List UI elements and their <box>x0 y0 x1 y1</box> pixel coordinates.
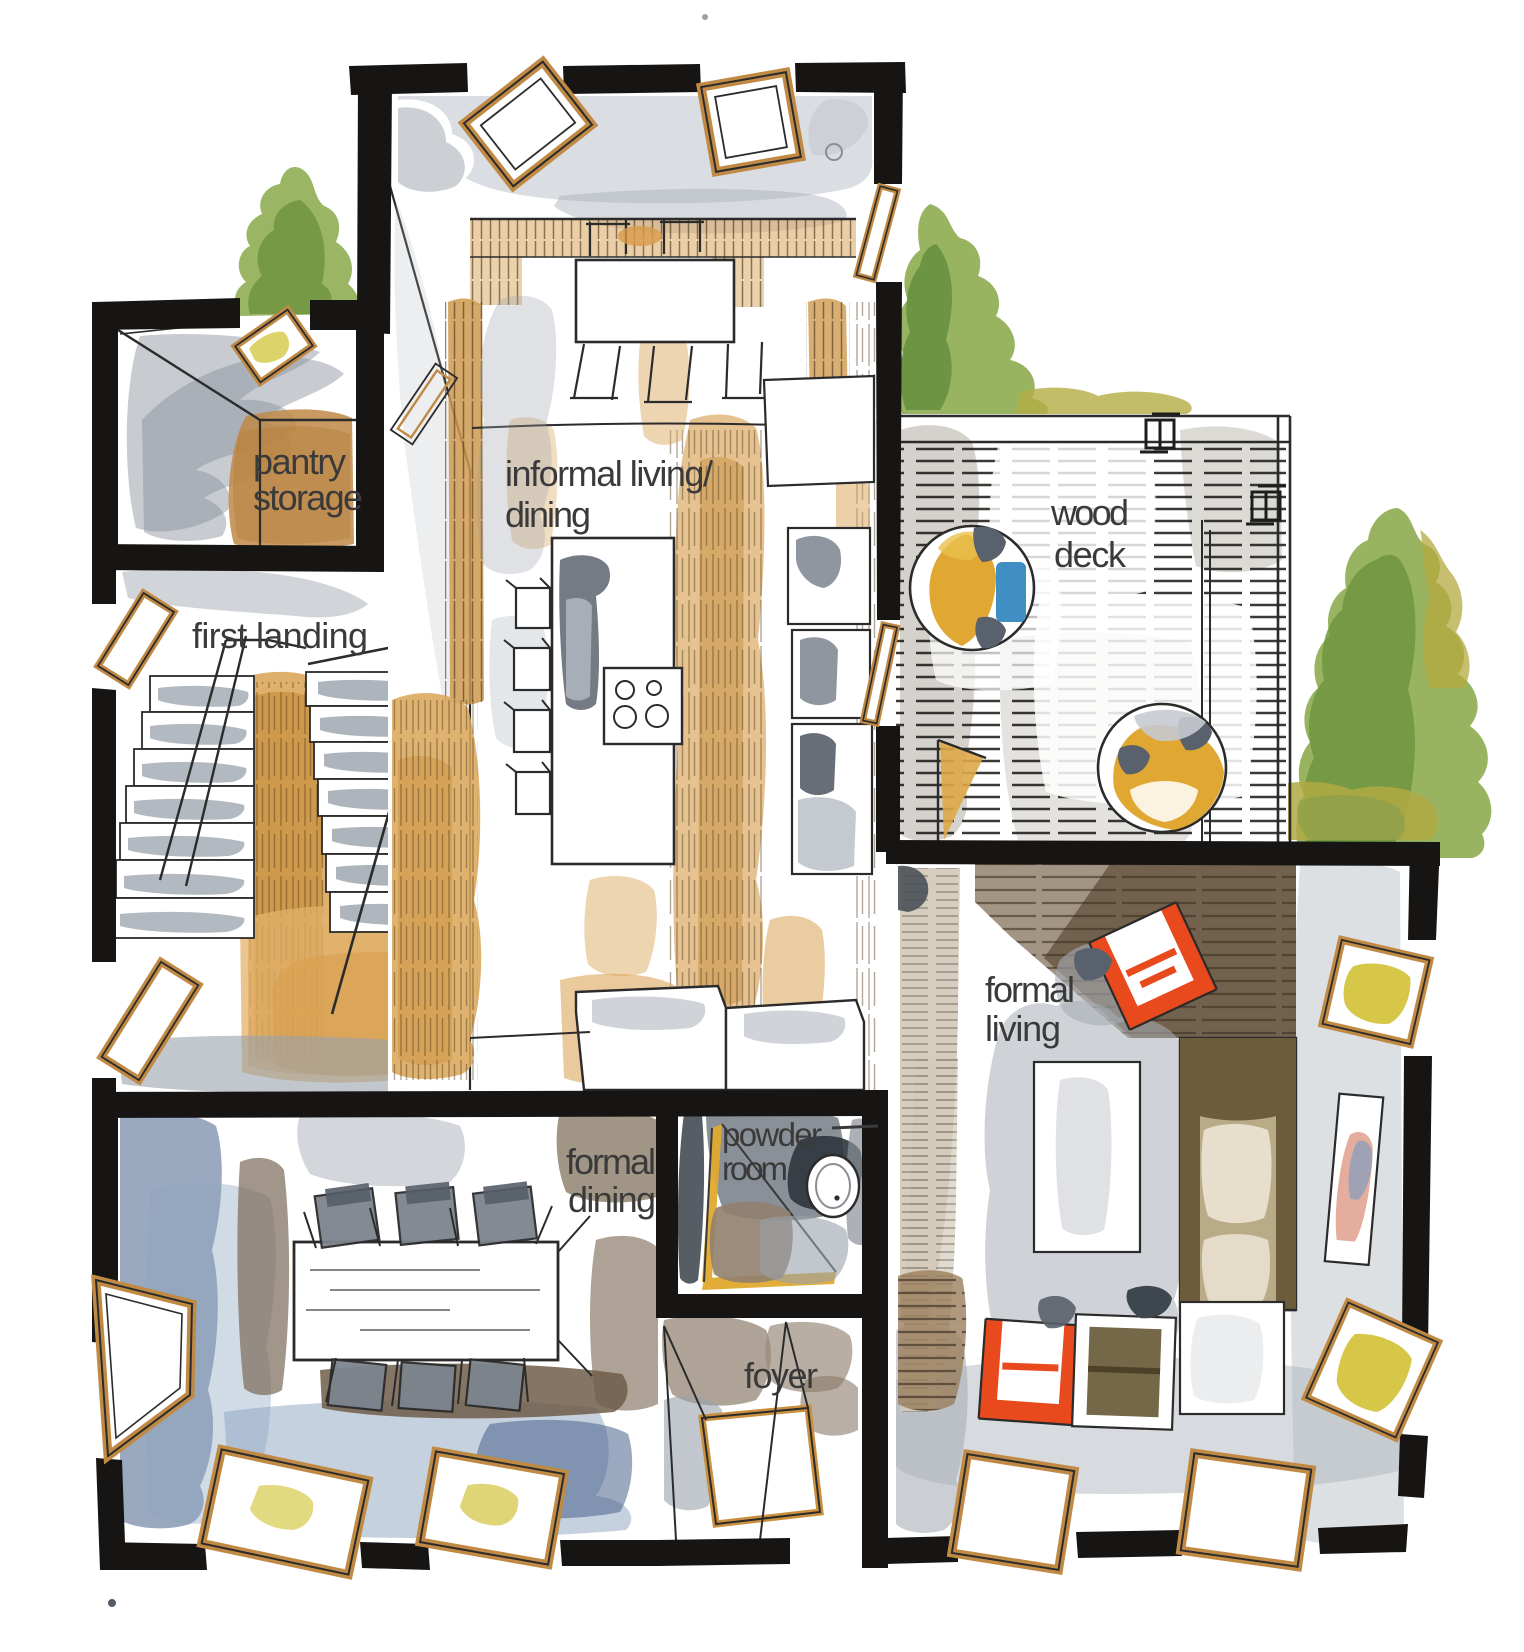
svg-text:living: living <box>985 1008 1061 1049</box>
svg-text:formal: formal <box>985 969 1075 1010</box>
svg-text:powder: powder <box>722 1116 822 1153</box>
svg-text:room: room <box>722 1150 788 1187</box>
svg-text:formal: formal <box>566 1141 656 1182</box>
svg-text:storage: storage <box>253 477 363 518</box>
svg-text:dining: dining <box>505 494 591 535</box>
svg-text:deck: deck <box>1054 534 1127 575</box>
svg-text:dining: dining <box>568 1179 656 1220</box>
svg-text:first landing: first landing <box>192 615 368 656</box>
svg-text:wood: wood <box>1050 492 1129 533</box>
svg-text:informal living/: informal living/ <box>505 453 713 494</box>
svg-text:foyer: foyer <box>744 1355 818 1396</box>
svg-text:pantry: pantry <box>253 441 346 482</box>
